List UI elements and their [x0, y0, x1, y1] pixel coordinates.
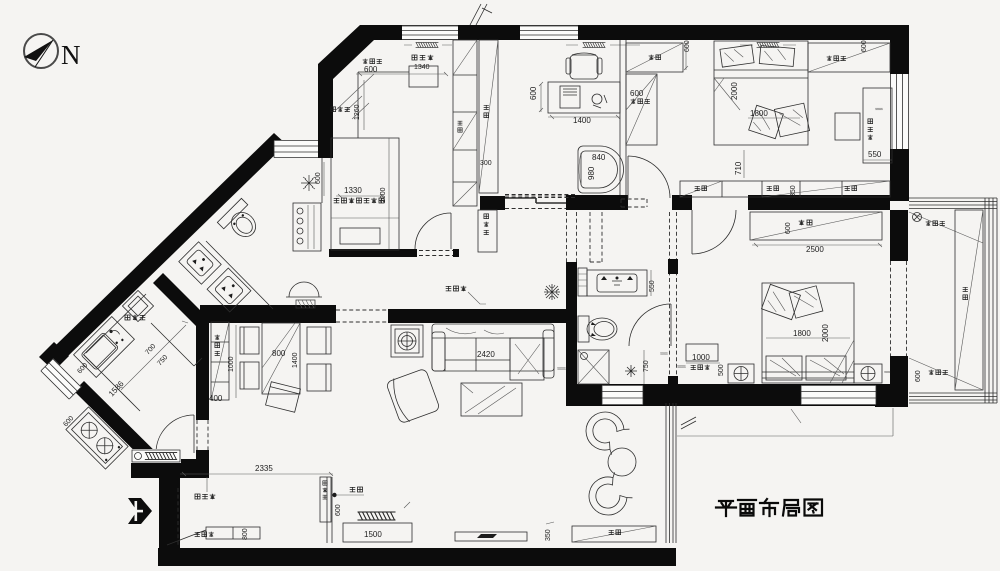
svg-text:2000: 2000: [730, 82, 739, 100]
svg-text:600: 600: [364, 65, 378, 74]
svg-text:600: 600: [315, 172, 322, 184]
svg-text:710: 710: [734, 161, 743, 175]
svg-text:1000: 1000: [228, 356, 235, 372]
svg-text:840: 840: [592, 153, 606, 162]
svg-text:2420: 2420: [477, 350, 495, 359]
svg-text:1340: 1340: [414, 64, 430, 71]
svg-text:600: 600: [529, 86, 538, 100]
svg-text:350: 350: [545, 529, 552, 541]
svg-text:550: 550: [649, 280, 656, 292]
svg-text:N: N: [61, 40, 81, 70]
svg-text:1400: 1400: [292, 352, 299, 368]
svg-text:350: 350: [790, 185, 797, 197]
svg-text:1000: 1000: [692, 353, 710, 362]
svg-text:600: 600: [861, 40, 868, 52]
svg-text:2335: 2335: [255, 464, 273, 473]
svg-text:1400: 1400: [573, 116, 591, 125]
svg-text:1500: 1500: [364, 530, 382, 539]
svg-text:500: 500: [718, 364, 725, 376]
svg-text:1800: 1800: [750, 109, 768, 118]
svg-text:600: 600: [915, 370, 922, 382]
svg-text:2500: 2500: [806, 245, 824, 254]
svg-text:400: 400: [209, 394, 223, 403]
svg-text:600: 600: [630, 89, 644, 98]
svg-text:800: 800: [242, 528, 249, 540]
svg-text:1800: 1800: [793, 329, 811, 338]
svg-text:2000: 2000: [821, 324, 830, 342]
svg-text:600: 600: [335, 504, 342, 516]
svg-text:1260: 1260: [354, 104, 361, 120]
svg-text:600: 600: [684, 40, 691, 52]
svg-text:800: 800: [272, 349, 286, 358]
svg-text:300: 300: [480, 160, 492, 167]
svg-text:550: 550: [868, 150, 882, 159]
svg-text:980: 980: [587, 166, 596, 180]
svg-text:600: 600: [785, 222, 792, 234]
svg-text:1330: 1330: [344, 186, 362, 195]
